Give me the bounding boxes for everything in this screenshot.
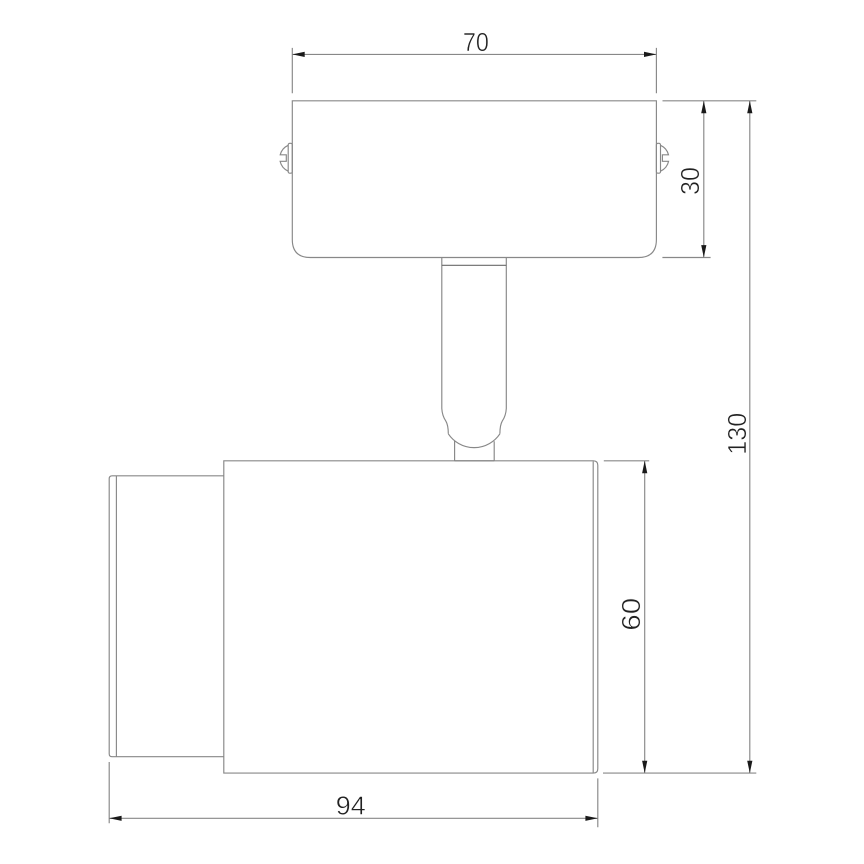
svg-text:30: 30 [677, 167, 705, 195]
svg-text:130: 130 [724, 413, 752, 455]
svg-text:94: 94 [336, 793, 366, 821]
svg-text:60: 60 [618, 598, 646, 631]
svg-text:70: 70 [463, 29, 489, 57]
